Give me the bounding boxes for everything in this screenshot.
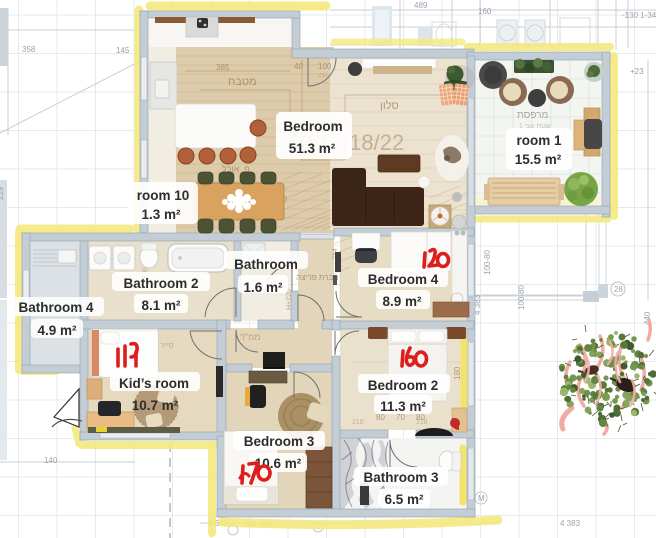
svg-text:מטבח: מטבח (228, 76, 257, 88)
svg-text:15.5 m²: 15.5 m² (515, 152, 562, 167)
svg-text:6.5 m²: 6.5 m² (384, 492, 424, 507)
svg-text:10.6 m²: 10.6 m² (255, 456, 302, 471)
svg-text:חברת פריצה: חברת פריצה (296, 273, 339, 282)
svg-text:Bedroom 4: Bedroom 4 (368, 272, 439, 287)
svg-text:4 383: 4 383 (560, 519, 581, 528)
svg-text:room 10: room 10 (137, 188, 190, 203)
svg-text:358: 358 (22, 45, 36, 54)
svg-text:-130 1-34: -130 1-34 (622, 11, 656, 20)
svg-text:4.9 m²: 4.9 m² (37, 323, 77, 338)
svg-text:219: 219 (0, 186, 5, 200)
svg-text:Bedroom 3: Bedroom 3 (244, 434, 315, 449)
svg-text:סייר: סייר (160, 341, 174, 350)
svg-text:489: 489 (414, 1, 428, 10)
svg-text:11.3 m²: 11.3 m² (380, 399, 426, 414)
svg-text:28: 28 (614, 285, 623, 294)
svg-text:Bathroom 3: Bathroom 3 (363, 470, 439, 485)
svg-text:Bathroom: Bathroom (234, 257, 298, 272)
svg-text:1.3 m²: 1.3 m² (141, 207, 181, 222)
svg-text:Kid’s room: Kid’s room (119, 376, 189, 391)
svg-text:218: 218 (416, 419, 428, 426)
svg-text:100-80: 100-80 (483, 250, 492, 275)
svg-text:ממ"ד: ממ"ד (240, 332, 261, 342)
svg-text:סלון: סלון (380, 99, 399, 112)
svg-text:1.6 m²: 1.6 m² (243, 280, 283, 295)
svg-text:145: 145 (116, 46, 130, 55)
svg-text:M: M (478, 494, 485, 503)
svg-text:מרפסת: מרפסת (517, 110, 549, 121)
svg-text:room 1: room 1 (516, 133, 562, 148)
svg-text:210: 210 (352, 419, 364, 426)
svg-text:Bathroom 2: Bathroom 2 (123, 276, 198, 291)
svg-text:Bathroom 4: Bathroom 4 (18, 300, 94, 315)
svg-text:Bedroom: Bedroom (283, 119, 342, 134)
svg-text:+23: +23 (630, 67, 644, 76)
svg-text:80: 80 (376, 413, 385, 422)
svg-text:70: 70 (396, 413, 405, 422)
svg-text:160: 160 (478, 7, 492, 16)
svg-text:Bedroom 2: Bedroom 2 (368, 378, 439, 393)
svg-text:100: 100 (318, 62, 332, 71)
svg-text:140: 140 (44, 456, 58, 465)
svg-text:211: 211 (318, 73, 328, 79)
svg-text:10.7 m²: 10.7 m² (132, 398, 179, 413)
svg-text:8.1 m²: 8.1 m² (141, 298, 181, 313)
svg-text:8.9 m²: 8.9 m² (382, 294, 422, 309)
svg-text:51.3 m²: 51.3 m² (289, 141, 336, 156)
svg-text:100-80: 100-80 (517, 285, 526, 310)
